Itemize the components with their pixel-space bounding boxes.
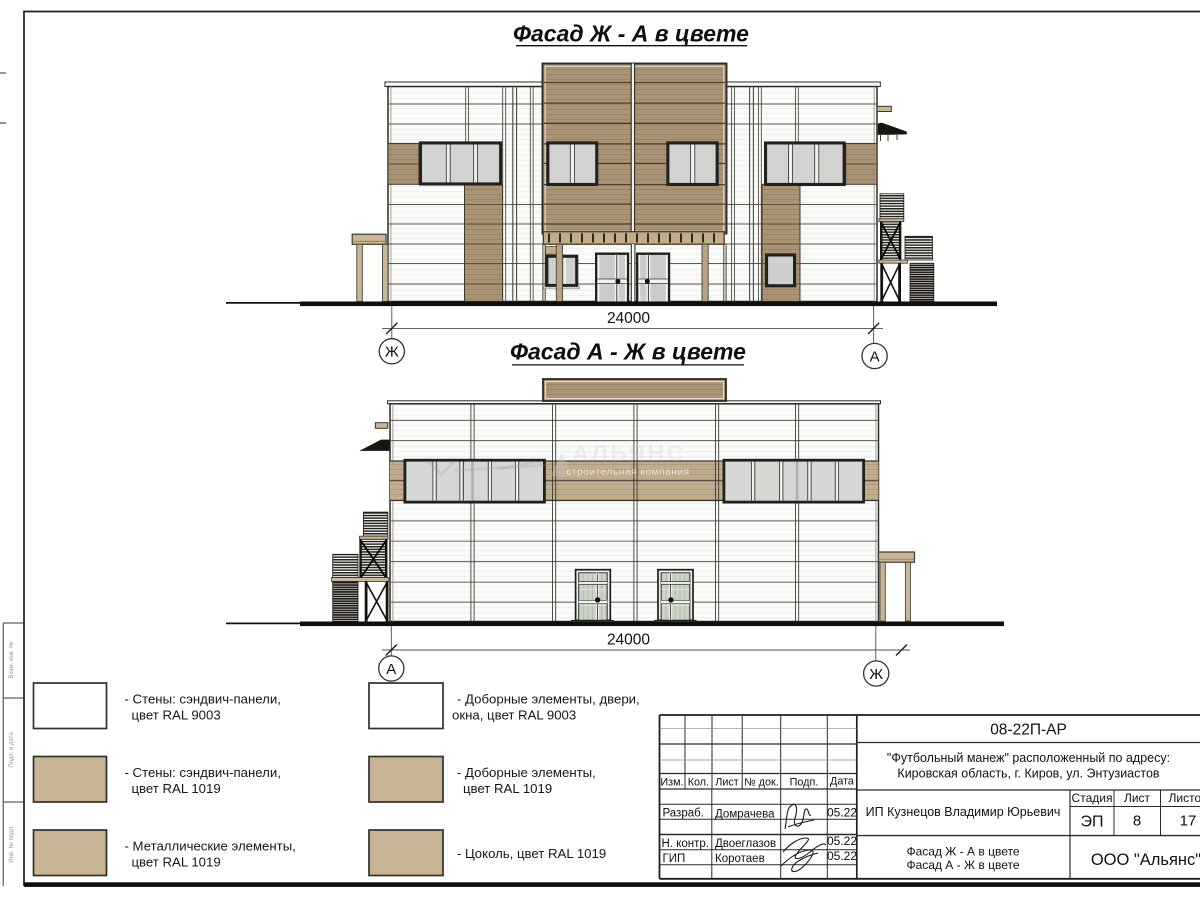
svg-text:05.22: 05.22 bbox=[827, 849, 857, 863]
svg-text:Фасад Ж - А в цвете: Фасад Ж - А в цвете bbox=[513, 21, 749, 47]
svg-text:- Стены: сэндвич-панели,: - Стены: сэндвич-панели, bbox=[125, 692, 281, 707]
svg-text:24000: 24000 bbox=[607, 631, 650, 648]
svg-text:Двоеглазов: Двоеглазов bbox=[715, 838, 776, 850]
svg-text:Фасад А - Ж в цвете: Фасад А - Ж в цвете bbox=[906, 858, 1019, 872]
svg-text:Кол.: Кол. bbox=[688, 776, 709, 788]
svg-text:Подп.: Подп. bbox=[790, 776, 819, 788]
svg-text:А: А bbox=[386, 661, 396, 678]
svg-text:8: 8 bbox=[1133, 813, 1141, 830]
svg-text:Подп. и дата: Подп. и дата bbox=[9, 732, 15, 768]
svg-text:Фасад А - Ж в цвете: Фасад А - Ж в цвете bbox=[510, 339, 746, 365]
svg-text:08-22П-АР: 08-22П-АР bbox=[990, 722, 1067, 739]
svg-text:Кировская область, г. Киров, у: Кировская область, г. Киров, ул. Энтузиа… bbox=[897, 766, 1159, 780]
svg-text:цвет RAL 1019: цвет RAL 1019 bbox=[132, 855, 221, 870]
svg-text:ГИП: ГИП bbox=[663, 853, 686, 865]
svg-text:Дата: Дата bbox=[830, 775, 854, 787]
svg-text:Взам. инв. №: Взам. инв. № bbox=[8, 641, 15, 678]
svg-text:- Доборные элементы,: - Доборные элементы, bbox=[457, 765, 596, 780]
svg-text:Домрачева: Домрачева bbox=[715, 808, 775, 820]
svg-text:цвет RAL 1019: цвет RAL 1019 bbox=[132, 781, 221, 796]
svg-text:цвет RAL 1019: цвет RAL 1019 bbox=[463, 781, 552, 796]
svg-text:Лист: Лист bbox=[1124, 791, 1151, 805]
svg-text:Инв. № подл.: Инв. № подл. bbox=[8, 825, 15, 863]
svg-text:Ж: Ж bbox=[869, 666, 883, 683]
svg-text:05.22: 05.22 bbox=[827, 834, 857, 848]
svg-text:05.22: 05.22 bbox=[827, 805, 857, 819]
svg-text:АЛЬЯНС: АЛЬЯНС bbox=[572, 440, 685, 466]
svg-text:Н. контр.: Н. контр. bbox=[662, 838, 709, 850]
svg-text:- Доборные элементы, двери,: - Доборные элементы, двери, bbox=[457, 692, 640, 707]
svg-text:№ док.: № док. bbox=[744, 776, 779, 788]
svg-text:- Стены: сэндвич-панели,: - Стены: сэндвич-панели, bbox=[125, 765, 281, 780]
svg-text:ИП Кузнецов Владимир Юрьевич: ИП Кузнецов Владимир Юрьевич bbox=[866, 805, 1061, 819]
svg-text:Лист: Лист bbox=[715, 776, 739, 788]
svg-text:Ж: Ж bbox=[385, 344, 399, 361]
svg-text:17: 17 bbox=[1180, 813, 1197, 830]
svg-text:"Футбольный манеж" расположенн: "Футбольный манеж" расположенный по адре… bbox=[887, 751, 1170, 765]
svg-text:Листов: Листов bbox=[1169, 791, 1200, 805]
svg-text:- Металлические элементы,: - Металлические элементы, bbox=[125, 839, 296, 854]
svg-text:окна, цвет RAL 9003: окна, цвет RAL 9003 bbox=[452, 708, 576, 723]
svg-text:Коротаев: Коротаев bbox=[715, 853, 765, 865]
svg-text:ООО "Альянс": ООО "Альянс" bbox=[1091, 851, 1200, 869]
svg-text:Изм.: Изм. bbox=[660, 776, 683, 788]
svg-text:цвет RAL 9003: цвет RAL 9003 bbox=[132, 708, 221, 723]
svg-text:24000: 24000 bbox=[607, 310, 650, 327]
svg-text:ЭП: ЭП bbox=[1081, 814, 1104, 831]
svg-text:А: А bbox=[870, 348, 880, 365]
svg-text:- Цоколь, цвет RAL 1019: - Цоколь, цвет RAL 1019 bbox=[457, 846, 606, 861]
svg-text:Стадия: Стадия bbox=[1072, 791, 1113, 805]
svg-text:Фасад Ж - А в цвете: Фасад Ж - А в цвете bbox=[906, 845, 1019, 859]
svg-text:Разраб.: Разраб. bbox=[663, 807, 704, 819]
svg-text:строительная компания: строительная компания bbox=[566, 467, 689, 478]
